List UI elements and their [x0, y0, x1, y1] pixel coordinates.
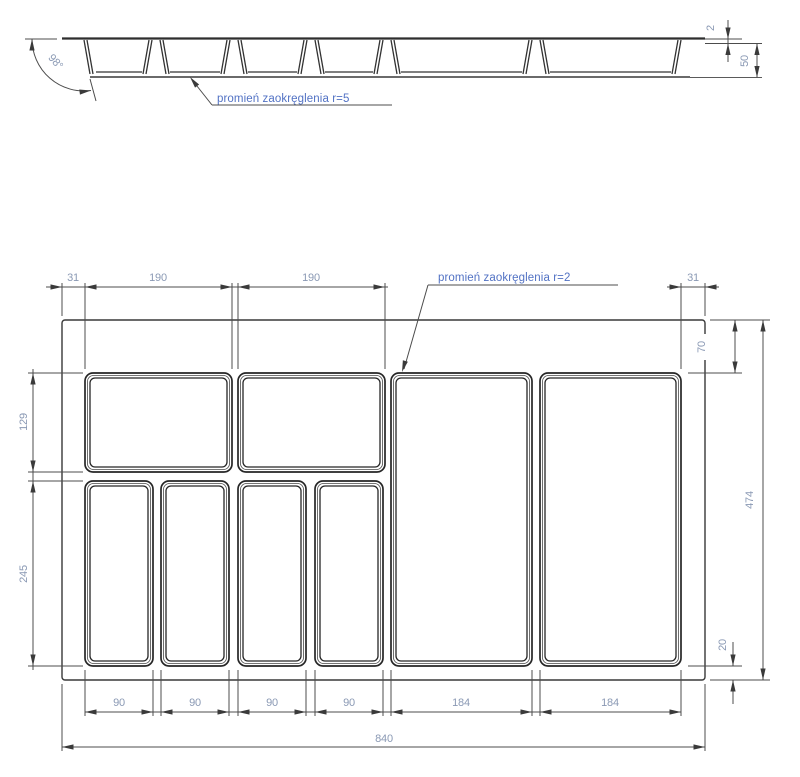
- section-view: 98° 2 50 promień zaokręglenia r=5: [25, 20, 762, 105]
- plan-view: 31 190 190 31 promień zaokręglenia r=2 1…: [18, 272, 770, 751]
- fillet-note-r2-text: promień zaokręglenia r=2: [438, 272, 571, 284]
- dim-large-width-1: 184: [452, 697, 470, 709]
- dim-total-width: 840: [375, 733, 393, 745]
- fillet-note-r2: promień zaokręglenia r=2: [400, 272, 618, 373]
- dim-row1-height: 129: [18, 413, 30, 431]
- dim-top-width-1: 190: [149, 272, 167, 284]
- dim-small-width-3: 90: [266, 697, 278, 709]
- dim-small-width-1: 90: [113, 697, 125, 709]
- left-dimensions: 129 245: [18, 369, 83, 670]
- section-dividers: [143, 40, 549, 74]
- dim-row2-height: 245: [18, 565, 30, 583]
- dim-top-inset: 70: [696, 341, 708, 353]
- compartment-tall-1: [391, 373, 532, 666]
- compartment-tall-2: [540, 373, 681, 666]
- dim-margin-right: 31: [687, 272, 699, 284]
- thickness-dimension: 2: [705, 20, 731, 62]
- dim-small-width-4: 90: [343, 697, 355, 709]
- compartment-top-2: [238, 373, 385, 472]
- compartment-top-1: [85, 373, 232, 472]
- fillet-note-r5: promień zaokręglenia r=5: [188, 75, 392, 105]
- depth-dimension: 50: [739, 44, 760, 78]
- fillet-note-r5-text: promień zaokręglenia r=5: [217, 93, 350, 105]
- technical-drawing-page: 98° 2 50 promień zaokręglenia r=5: [0, 0, 800, 777]
- section-right-wall: [672, 40, 681, 74]
- thickness-dim-text: 2: [705, 25, 717, 31]
- dim-margin-left: 31: [67, 272, 79, 284]
- bottom-dimensions: 90 90 90 90 184 184: [85, 670, 681, 716]
- technical-drawing: 98° 2 50 promień zaokręglenia r=5: [0, 0, 800, 777]
- dim-top-width-2: 190: [302, 272, 320, 284]
- dim-bottom-inset: 20: [717, 639, 729, 651]
- dim-total-height: 474: [744, 491, 756, 509]
- compartment-small-1: [85, 481, 153, 666]
- depth-dim-text: 50: [739, 55, 751, 67]
- section-left-wall: [84, 40, 93, 74]
- compartment-small-3: [238, 481, 306, 666]
- compartment-small-2: [161, 481, 229, 666]
- compartment-small-4: [315, 481, 383, 666]
- dim-large-width-2: 184: [601, 697, 619, 709]
- dim-small-width-2: 90: [189, 697, 201, 709]
- angle-dim-text: 98°: [45, 52, 65, 72]
- right-dimensions: 70 474 20: [688, 320, 770, 704]
